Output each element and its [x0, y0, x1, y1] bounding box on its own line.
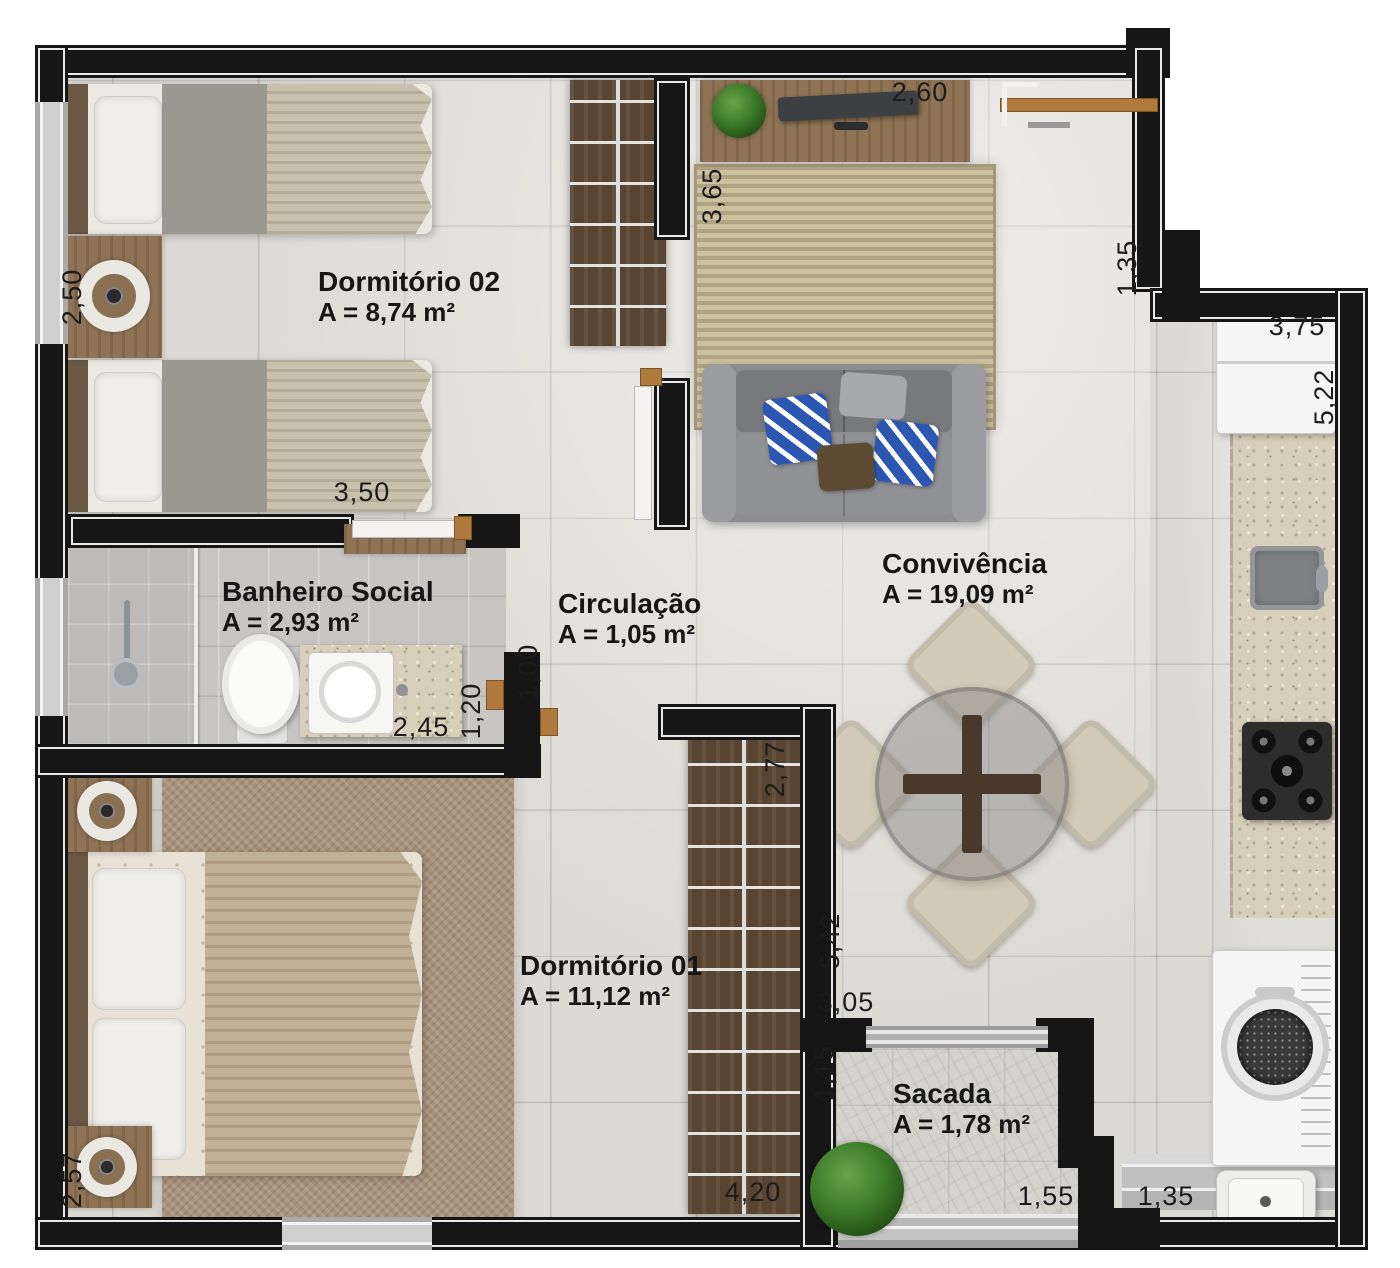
lamp-shade — [89, 1149, 125, 1185]
lamp-bulb — [99, 803, 114, 818]
room-area: A = 19,09 m² — [882, 580, 1047, 610]
toilet — [222, 634, 300, 734]
wardrobe-dorm02 — [570, 80, 666, 346]
bed1-blanket — [267, 84, 432, 234]
shower-area — [68, 547, 196, 745]
entry-door-leaf — [1000, 98, 1158, 112]
washing-machine — [1212, 950, 1338, 1166]
window-dorm01 — [282, 1217, 432, 1250]
sink-basin — [319, 661, 381, 723]
shower-pipe — [124, 600, 130, 662]
dimension-dorm01-left: 2,57 — [57, 1135, 87, 1225]
potted-plant-living — [712, 84, 766, 138]
sofa-pillow-grey — [839, 372, 908, 420]
wall-top — [35, 45, 1165, 78]
wall-bottom — [35, 1217, 1368, 1250]
entry-door-swing — [1028, 122, 1070, 128]
wall-kitchen-stub — [1162, 230, 1200, 322]
dining-table-base-horizontal — [903, 774, 1041, 794]
dimension-bath-right: 1,20 — [456, 666, 486, 756]
lamp-shade — [89, 793, 125, 829]
lamp-dorm01-top — [77, 781, 137, 841]
sofa-pillow-brown — [816, 442, 875, 492]
dimension-dorm01-bottom: 3,05 — [801, 987, 891, 1017]
washer-handle — [1255, 987, 1295, 997]
room-name: Dormitório 01 — [520, 950, 702, 982]
sofa — [702, 364, 986, 522]
dimension-wardrobe01-side: 2,77 — [760, 724, 790, 814]
dimension-dorm02-bottom: 3,50 — [317, 477, 407, 507]
room-area: A = 8,74 m² — [318, 298, 500, 328]
room-name: Sacada — [893, 1078, 1030, 1110]
cooktop — [1242, 722, 1332, 820]
kitchen-sink — [1250, 546, 1324, 610]
dimension-dorm01-right: 5,42 — [815, 896, 845, 986]
dimension-wardrobe01-bottom: 4,20 — [708, 1177, 798, 1207]
wall-right-wing — [1335, 288, 1368, 1250]
window-bathroom — [35, 578, 68, 716]
wall-dorm02-divider-bottom — [654, 378, 690, 530]
lamp-dorm02 — [78, 260, 150, 332]
dimension-kitchen-entry: 1,35 — [1112, 223, 1142, 313]
double-bed-pillow-top — [92, 868, 186, 1010]
room-area: A = 1,78 m² — [893, 1110, 1030, 1140]
lamp-bulb — [99, 1159, 114, 1174]
kitchen-counter — [1230, 430, 1340, 918]
room-area: A = 1,05 m² — [558, 620, 701, 650]
room-label-circulacao: Circulação A = 1,05 m² — [558, 588, 701, 650]
room-name: Circulação — [558, 588, 701, 620]
dimension-laundry-bottom: 1,35 — [1121, 1181, 1211, 1211]
door-jamb-dorm01-left — [486, 680, 504, 710]
sliding-door — [866, 1026, 1048, 1048]
shower-head-icon — [110, 658, 142, 690]
room-name: Dormitório 02 — [318, 266, 500, 298]
room-label-banheiro-social: Banheiro Social A = 2,93 m² — [222, 576, 434, 638]
lamp-bulb — [105, 287, 123, 305]
bed1-pillow — [94, 96, 162, 224]
tank-drain — [1260, 1196, 1271, 1207]
room-name: Banheiro Social — [222, 576, 434, 608]
dimension-bath-bottom: 2,45 — [376, 712, 466, 742]
floor-plan: Dormitório 02 A = 8,74 m² Banheiro Socia… — [0, 0, 1400, 1268]
entry-door-frame-v — [1002, 82, 1007, 126]
vanity-faucet-icon — [396, 684, 408, 696]
room-label-dormitorio-01: Dormitório 01 A = 11,12 m² — [520, 950, 702, 1012]
dimension-sacada-bottom: 1,55 — [1001, 1181, 1091, 1211]
room-label-dormitorio-02: Dormitório 02 A = 8,74 m² — [318, 266, 500, 328]
sofa-armrest-left — [702, 364, 736, 522]
shower-glass — [194, 547, 198, 745]
bed2-pillow — [94, 372, 162, 502]
dimension-rug-side: 3,65 — [697, 151, 727, 241]
single-bed-1 — [62, 84, 432, 234]
entry-door-frame-h — [1002, 82, 1038, 87]
room-area: A = 11,12 m² — [520, 982, 702, 1012]
wall-bath-top-left — [68, 514, 354, 548]
sofa-pillow-blue-right — [870, 418, 939, 487]
tv-stand — [834, 122, 868, 130]
bed2-sheet — [162, 360, 272, 512]
dimension-tv-wall: 2,60 — [875, 77, 965, 107]
kitchen-faucet-icon — [1316, 566, 1328, 592]
room-area: A = 2,93 m² — [222, 608, 434, 638]
dimension-dorm02-left: 2,50 — [57, 252, 87, 342]
nightstand-dorm01-top — [62, 770, 152, 852]
dimension-circulation-wall: 1,00 — [513, 627, 543, 717]
lamp-shade — [92, 274, 135, 317]
dimension-kitchen-top: 3,75 — [1252, 311, 1342, 341]
room-name: Convivência — [882, 548, 1047, 580]
door-leaf-bathroom — [352, 520, 458, 538]
double-bed-blanket — [205, 852, 422, 1176]
wall-dorm02-divider-top — [654, 78, 690, 240]
sofa-armrest-right — [952, 364, 986, 522]
door-jamb-dorm02 — [640, 368, 662, 386]
dimension-sacada-left: 1,15 — [809, 1028, 839, 1118]
bed1-sheet — [162, 84, 272, 234]
potted-plant-balcony — [810, 1142, 904, 1236]
dimension-kitchen-right: 5,22 — [1309, 352, 1339, 442]
washer-drum — [1237, 1009, 1313, 1085]
door-jamb-bathroom — [454, 516, 472, 540]
door-leaf-dorm02 — [634, 386, 652, 520]
room-label-convivencia: Convivência A = 19,09 m² — [882, 548, 1047, 610]
room-label-sacada: Sacada A = 1,78 m² — [893, 1078, 1030, 1140]
wall-laundry-foot — [1078, 1208, 1160, 1248]
